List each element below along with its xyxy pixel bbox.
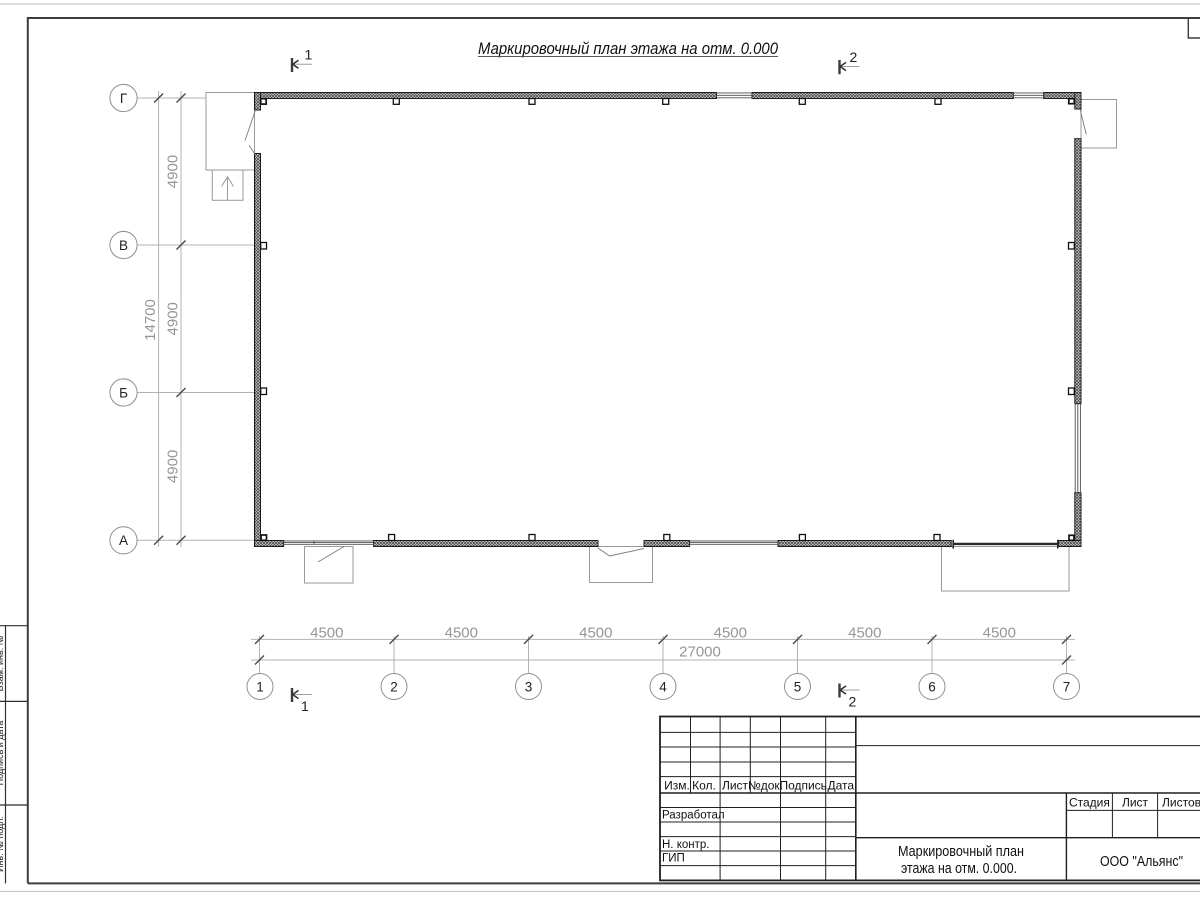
svg-text:6: 6 <box>928 679 936 694</box>
svg-text:1: 1 <box>301 698 309 714</box>
svg-text:7: 7 <box>1063 679 1071 694</box>
svg-text:Маркировочный план: Маркировочный план <box>898 844 1024 860</box>
svg-text:4900: 4900 <box>165 450 182 483</box>
svg-text:2: 2 <box>390 679 398 694</box>
svg-text:1: 1 <box>305 47 313 63</box>
svg-text:Лист: Лист <box>722 779 749 793</box>
svg-text:ГИП: ГИП <box>662 853 685 865</box>
svg-text:Дата: Дата <box>828 779 855 793</box>
svg-text:Кол.: Кол. <box>692 779 716 793</box>
svg-text:ООО "Альянс": ООО "Альянс" <box>1100 854 1183 870</box>
svg-text:2: 2 <box>849 694 857 710</box>
svg-text:Маркировочный план этажа на от: Маркировочный план этажа на отм. 0.000 <box>478 40 779 58</box>
svg-text:Листов: Листов <box>1162 796 1200 810</box>
svg-text:А: А <box>119 533 128 548</box>
svg-text:4500: 4500 <box>310 625 343 642</box>
svg-text:Подпись и дата: Подпись и дата <box>0 721 5 786</box>
svg-text:Изм.: Изм. <box>664 779 690 793</box>
svg-text:этажа на отм. 0.000.: этажа на отм. 0.000. <box>901 861 1017 877</box>
svg-text:4500: 4500 <box>579 625 612 642</box>
svg-text:4500: 4500 <box>445 625 478 642</box>
svg-text:5: 5 <box>794 679 802 694</box>
svg-text:Б: Б <box>119 385 128 400</box>
svg-text:Инв. № подл.: Инв. № подл. <box>0 816 5 872</box>
svg-text:Лист: Лист <box>1122 796 1149 810</box>
svg-text:Г: Г <box>120 91 128 106</box>
svg-text:27000: 27000 <box>679 644 721 661</box>
svg-text:Взам. инв. №: Взам. инв. № <box>0 635 5 691</box>
svg-text:В: В <box>119 238 128 253</box>
svg-text:4500: 4500 <box>714 625 747 642</box>
svg-text:Подпись: Подпись <box>779 779 827 793</box>
svg-text:Разработал: Разработал <box>662 810 725 822</box>
svg-text:Стадия: Стадия <box>1069 796 1110 810</box>
svg-text:3: 3 <box>525 679 533 694</box>
svg-text:Н. контр.: Н. контр. <box>662 839 709 851</box>
svg-text:4900: 4900 <box>165 302 182 335</box>
svg-text:2: 2 <box>850 49 858 65</box>
svg-text:№док.: №док. <box>748 779 783 793</box>
svg-text:14700: 14700 <box>142 299 159 341</box>
svg-text:4500: 4500 <box>848 625 881 642</box>
svg-text:1: 1 <box>256 679 264 694</box>
svg-text:4900: 4900 <box>165 155 182 188</box>
svg-text:4500: 4500 <box>983 625 1016 642</box>
svg-text:4: 4 <box>659 679 667 694</box>
